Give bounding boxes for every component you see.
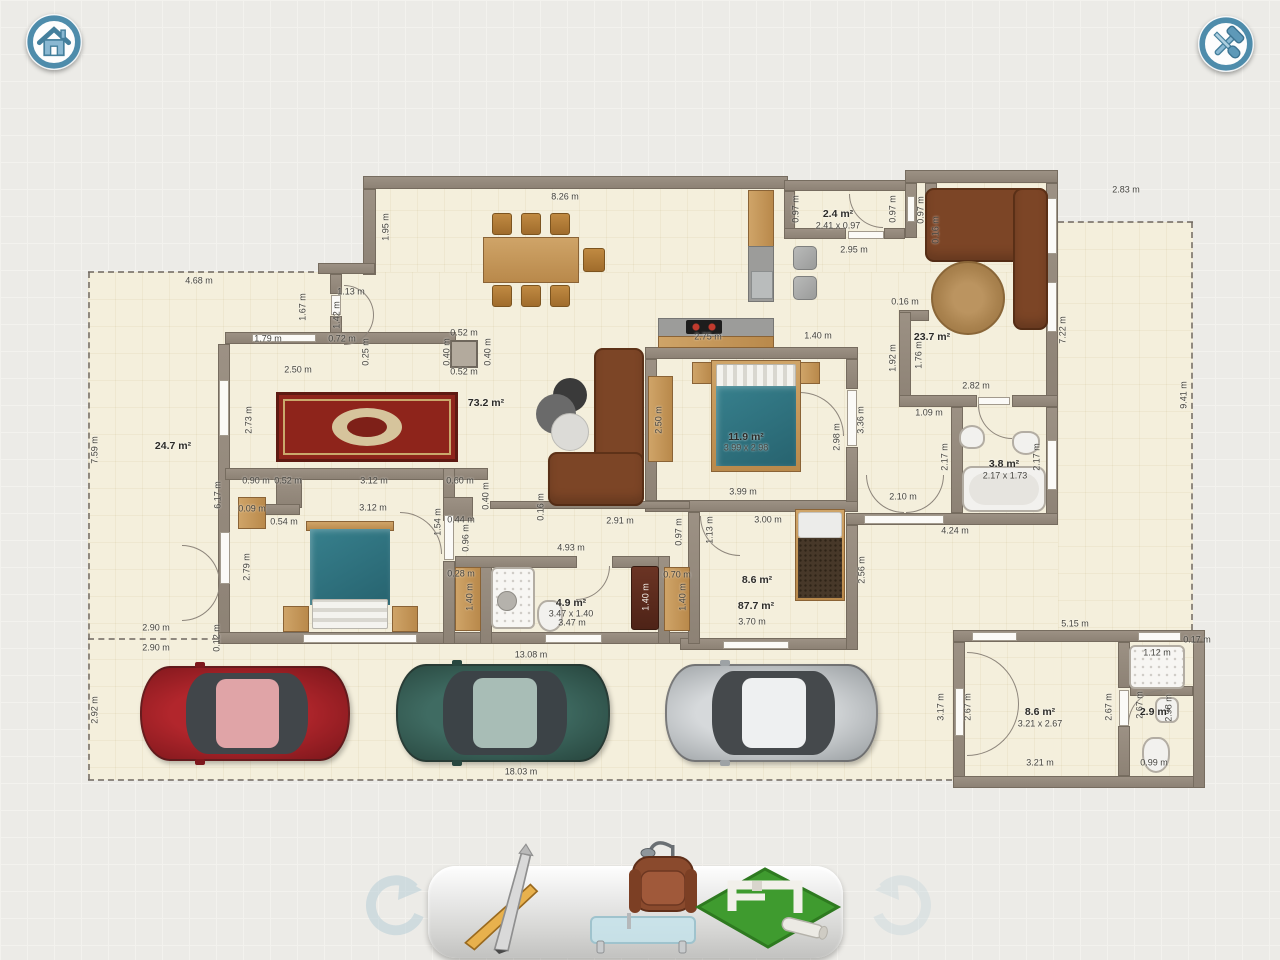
nightstand[interactable] <box>800 362 820 384</box>
wall-segment[interactable] <box>846 447 858 502</box>
room-area-label: 24.7 m² <box>155 441 191 452</box>
car-red[interactable] <box>140 666 350 761</box>
dimension-label: 0.25 m <box>362 338 371 366</box>
dimension-label: 1.12 m <box>1143 649 1171 658</box>
dining-chair[interactable] <box>550 285 570 307</box>
dimension-label: 2.95 m <box>840 246 868 255</box>
armchair-lamp-table-icon <box>591 843 697 953</box>
room-area-label: 3.8 m² <box>989 459 1019 470</box>
shower[interactable] <box>491 567 535 629</box>
floor-plan-canvas[interactable]: 8.26 m1.95 m2.83 m7.22 m9.41 m4.68 m1.13… <box>0 0 1280 960</box>
wall-segment[interactable] <box>784 180 910 191</box>
dimension-label: 1.92 m <box>889 344 898 372</box>
car-mirror <box>195 662 205 668</box>
dimension-label: 5.15 m <box>1061 620 1089 629</box>
wall-segment[interactable] <box>846 525 858 650</box>
single-bed-blanket <box>798 538 842 598</box>
car-mirror <box>452 660 462 666</box>
dimension-label: 0.40 m <box>443 338 452 366</box>
car-roof <box>216 679 279 747</box>
dimension-label: 0.52 m <box>274 477 302 486</box>
dimension-label: 3.99 x 2.98 <box>724 444 769 453</box>
dimension-label: 1.79 m <box>254 335 282 344</box>
wall-segment[interactable] <box>218 632 692 644</box>
car-mirror <box>195 759 205 765</box>
kitchen-cabinet[interactable] <box>748 190 774 248</box>
dimension-label: 13.08 m <box>515 651 548 660</box>
floor-area-right-terrace[interactable] <box>1058 222 1193 632</box>
dimension-label: 0.54 m <box>270 518 298 527</box>
dining-chair[interactable] <box>492 285 512 307</box>
dimension-label: 1.13 m <box>337 288 365 297</box>
dimension-label: 1.76 m <box>915 341 924 369</box>
dimension-label: 4.93 m <box>557 544 585 553</box>
dimension-label: 2.92 m <box>91 696 100 724</box>
bed-pillows-2 <box>312 599 388 629</box>
dimension-label: 3.36 m <box>857 406 866 434</box>
dimension-label: 2.73 m <box>245 406 254 434</box>
wall-segment[interactable] <box>905 170 1058 183</box>
bathroom-sink[interactable] <box>959 425 985 449</box>
house-model-grass-icon <box>698 869 838 947</box>
dimension-label: 0.60 m <box>446 477 474 486</box>
dimension-label: 3.12 m <box>359 504 387 513</box>
dimension-label: 0.16 m <box>891 298 919 307</box>
dimension-label: 0.99 m <box>1140 759 1168 768</box>
car-teal[interactable] <box>396 664 610 762</box>
double-bed-duvet[interactable] <box>716 386 796 466</box>
dimension-label: 2.67 m <box>964 693 973 721</box>
dimension-label: 1.42 m <box>333 301 342 329</box>
wall-segment[interactable] <box>645 347 858 359</box>
car-mirror <box>720 760 730 766</box>
dimension-label: 2.90 m <box>142 644 170 653</box>
dimension-label: 7.22 m <box>1059 316 1068 344</box>
wall-segment[interactable] <box>899 395 977 407</box>
dimension-label: 2.90 m <box>142 624 170 633</box>
dimension-label: 1.40 m <box>642 583 651 611</box>
dining-chair[interactable] <box>492 213 512 235</box>
corner-sofa-livingroom-arm[interactable] <box>1013 188 1048 330</box>
bed-pillows <box>716 364 796 388</box>
dimension-label: 2.17 m <box>1033 443 1042 471</box>
column[interactable] <box>450 340 478 368</box>
room-area-label: 8.6 m² <box>742 575 772 586</box>
dimension-label: 2.79 m <box>243 553 252 581</box>
window[interactable] <box>1047 282 1057 332</box>
window[interactable] <box>848 231 884 239</box>
property-boundary <box>88 271 314 273</box>
dimension-label: 2.67 m <box>1105 693 1114 721</box>
car-mirror <box>452 760 462 766</box>
window[interactable] <box>723 641 789 649</box>
dimension-label: 1.67 m <box>299 293 308 321</box>
wall-segment[interactable] <box>264 504 300 515</box>
room-area-label: 73.2 m² <box>468 398 504 409</box>
window[interactable] <box>303 634 417 643</box>
wall-segment[interactable] <box>363 176 788 189</box>
undo-button[interactable] <box>352 868 437 943</box>
wall-segment[interactable] <box>899 312 911 406</box>
dimension-label: 1.40 m <box>466 583 475 611</box>
dimension-label: 2.10 m <box>889 493 917 502</box>
dimension-label: 18.03 m <box>505 768 538 777</box>
tools-button[interactable] <box>1198 16 1254 72</box>
dimension-label: 3.17 m <box>937 693 946 721</box>
dimension-label: 2.41 x 0.97 <box>816 222 861 231</box>
window[interactable] <box>1047 440 1057 490</box>
dining-chair[interactable] <box>521 213 541 235</box>
wall-segment[interactable] <box>1118 726 1130 776</box>
wall-segment[interactable] <box>1012 395 1058 407</box>
kitchen-sink <box>751 271 773 299</box>
dimension-label: 4.24 m <box>941 527 969 536</box>
dimension-label: 0.96 m <box>462 524 471 552</box>
dimension-label: 0.40 m <box>482 482 491 510</box>
dimension-label: 0.12 m <box>213 624 222 652</box>
dimension-label: 2.98 m <box>833 423 842 451</box>
room-area-label: 4.9 m² <box>556 598 586 609</box>
fridge[interactable] <box>793 246 817 270</box>
dimension-label: 1.54 m <box>434 508 443 536</box>
dimension-label: 0.09 m <box>238 505 266 514</box>
dimension-label: 1.95 m <box>382 213 391 241</box>
dimension-label: 2.83 m <box>1112 186 1140 195</box>
dimension-label: 1.40 m <box>679 583 688 611</box>
dimension-label: 0.52 m <box>450 329 478 338</box>
redo-button[interactable] <box>860 868 945 943</box>
wall-segment[interactable] <box>884 228 905 239</box>
dining-chair[interactable] <box>521 285 541 307</box>
dimension-label: 0.16 m <box>932 216 941 244</box>
dimension-label: 3.00 m <box>754 516 782 525</box>
dining-chair[interactable] <box>550 213 570 235</box>
dimension-label: 3.99 m <box>729 488 757 497</box>
dimension-label: 2.82 m <box>962 382 990 391</box>
nightstand[interactable] <box>283 606 309 632</box>
dimension-label: 0.17 m <box>1183 636 1211 645</box>
dimension-label: 3.21 m <box>1026 759 1054 768</box>
wall-segment[interactable] <box>318 263 375 274</box>
build-tool-button[interactable] <box>690 855 845 953</box>
dimension-label: 0.70 m <box>663 571 691 580</box>
dimension-label: 0.40 m <box>484 338 493 366</box>
property-boundary <box>1058 221 1193 223</box>
window[interactable] <box>907 196 915 222</box>
round-rug[interactable] <box>931 261 1005 335</box>
room-area-label: 87.7 m² <box>738 601 774 612</box>
dimension-label: 0.52 m <box>450 368 478 377</box>
dimension-label: 0.72 m <box>328 335 356 344</box>
dimension-label: 6.17 m <box>214 481 223 509</box>
dimension-label: 0.28 m <box>447 570 475 579</box>
dimension-label: 2.50 m <box>284 366 312 375</box>
parking-guide-line <box>88 638 218 640</box>
nightstand[interactable] <box>692 362 712 384</box>
dimension-label: 3.47 m <box>558 619 586 628</box>
dimension-label: 0.16 m <box>537 493 546 521</box>
fridge[interactable] <box>793 276 817 300</box>
dimension-label: 0.97 m <box>917 196 926 224</box>
dimension-label: 2.91 m <box>606 517 634 526</box>
dimension-label: 0.97 m <box>675 518 684 546</box>
window[interactable] <box>545 634 602 643</box>
dimension-label: 1.09 m <box>915 409 943 418</box>
property-boundary <box>88 779 952 781</box>
room-area-label: 11.9 m² <box>728 432 764 443</box>
dimension-label: 3.21 x 2.67 <box>1018 720 1063 729</box>
kitchen-counter[interactable] <box>748 246 774 302</box>
dimension-label: 7.59 m <box>91 436 100 464</box>
window[interactable] <box>220 532 230 584</box>
window[interactable] <box>219 380 229 436</box>
room-area-label: 2.4 m² <box>823 209 853 220</box>
dimension-label: 2.17 m <box>941 443 950 471</box>
wall-segment[interactable] <box>846 359 858 389</box>
room-area-label: 2.9 m² <box>1140 707 1170 718</box>
corner-sofa-chaise[interactable] <box>548 452 644 506</box>
car-roof <box>473 678 537 749</box>
pouf-light[interactable] <box>551 413 589 451</box>
window[interactable] <box>864 515 944 524</box>
dimension-label: 0.90 m <box>242 477 270 486</box>
property-boundary <box>1191 222 1193 630</box>
home-icon <box>26 14 82 70</box>
toilet[interactable] <box>1142 737 1170 773</box>
dimension-label: 2.17 x 1.73 <box>983 472 1028 481</box>
dimension-label: 2.50 m <box>655 406 664 434</box>
window[interactable] <box>978 397 1010 405</box>
dimension-label: 1.40 m <box>804 332 832 341</box>
window[interactable] <box>972 632 1017 641</box>
dimension-label: 0.97 m <box>889 195 898 223</box>
rug-medallion-center <box>347 417 387 437</box>
wall-segment[interactable] <box>1193 642 1205 788</box>
hammer-screwdriver-icon <box>1198 16 1254 72</box>
dimension-label: 3.70 m <box>738 618 766 627</box>
shower-head <box>497 591 517 611</box>
dimension-label: 0.97 m <box>792 195 801 223</box>
car-silver[interactable] <box>665 664 878 762</box>
dimension-label: 2.75 m <box>694 333 722 342</box>
pencil-ruler-icon <box>465 844 537 954</box>
double-bed-duvet-2[interactable] <box>310 529 390 605</box>
single-bed-pillow <box>798 512 842 538</box>
wall-segment[interactable] <box>953 776 1205 788</box>
window[interactable] <box>1047 198 1057 254</box>
persian-rug[interactable] <box>276 392 458 462</box>
dimension-label: 3.12 m <box>360 477 388 486</box>
dimension-label: 2.56 m <box>858 556 867 584</box>
draw-tool-button[interactable] <box>455 842 570 954</box>
home-button[interactable] <box>26 14 82 70</box>
nightstand[interactable] <box>392 606 418 632</box>
car-roof <box>742 678 806 749</box>
car-mirror <box>720 660 730 666</box>
room-area-label: 8.6 m² <box>1025 707 1055 718</box>
dimension-label: 9.41 m <box>1180 381 1189 409</box>
dining-table[interactable] <box>483 237 579 283</box>
window[interactable] <box>1138 632 1181 641</box>
dining-chair[interactable] <box>583 248 605 272</box>
dimension-label: 1.13 m <box>706 516 715 544</box>
dimension-label: 4.68 m <box>185 277 213 286</box>
dimension-label: 8.26 m <box>551 193 579 202</box>
